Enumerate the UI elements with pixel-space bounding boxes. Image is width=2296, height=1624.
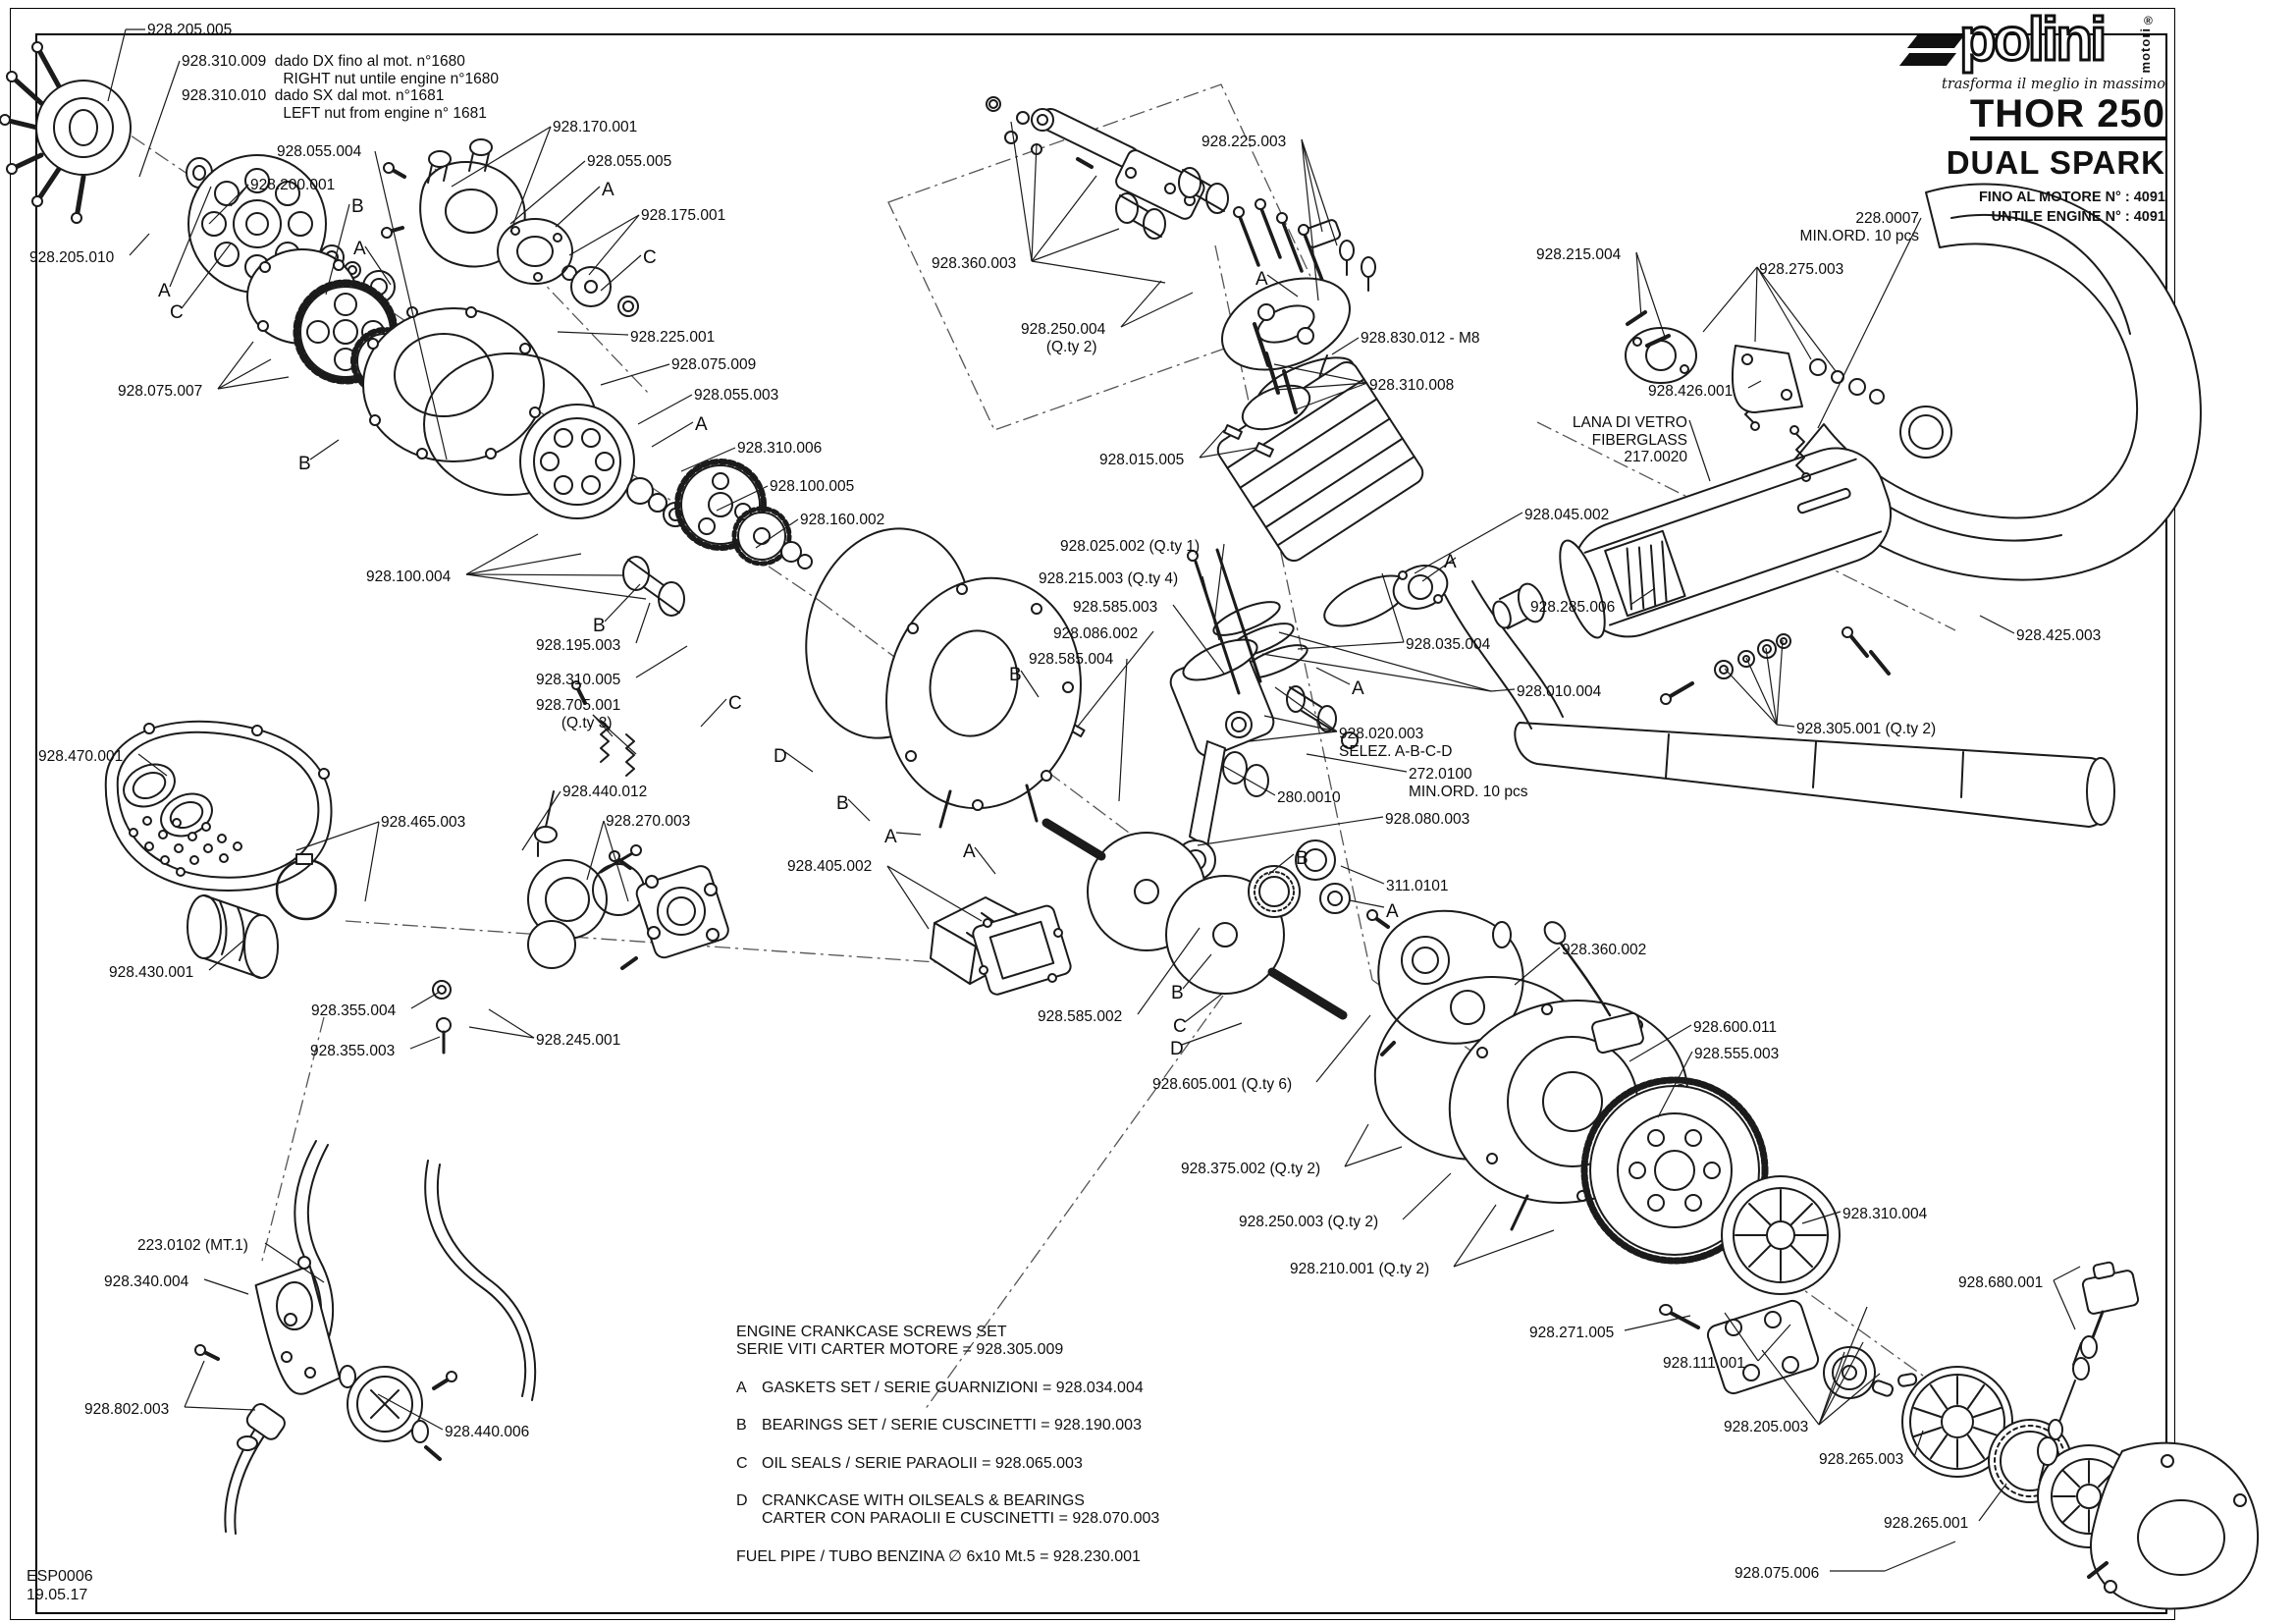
part-label: 928.802.003	[84, 1401, 169, 1419]
part-label: 928.225.003	[1201, 134, 1286, 151]
part-label: 928.025.002 (Q.ty 1)	[1060, 538, 1200, 556]
part-label: 928.340.004	[104, 1273, 188, 1291]
document-date: 19.05.17	[27, 1586, 93, 1604]
part-label: 928.100.004	[366, 568, 451, 586]
part-label: 928.585.003	[1073, 599, 1157, 617]
part-label: B	[1009, 665, 1022, 686]
part-label: 928.465.003	[381, 814, 465, 832]
part-label: 928.355.004	[311, 1002, 396, 1020]
model-variant: DUAL SPARK	[1865, 144, 2165, 182]
part-label: 223.0102 (MT.1)	[137, 1237, 248, 1255]
airbox-illustration	[106, 722, 332, 891]
part-label: A	[1352, 678, 1364, 700]
engine-note-line: UNTILE ENGINE N° : 4091	[1865, 208, 2165, 228]
part-label: 928.200.001	[250, 177, 335, 194]
brand-tagline: trasforma il meglio in massimo	[1924, 77, 2165, 92]
part-label: B	[351, 196, 364, 218]
part-label: 280.0010	[1277, 789, 1341, 807]
part-label: A	[1255, 269, 1268, 291]
part-label: 928.305.001 (Q.ty 2)	[1796, 721, 1936, 738]
part-label: 928.075.007	[118, 383, 202, 401]
brand-logo: polini ® motori	[1902, 16, 2165, 84]
center-crankcase-illustration	[784, 511, 1101, 827]
part-label: 928.055.004	[277, 143, 361, 161]
part-label: 928.210.001 (Q.ty 2)	[1290, 1261, 1429, 1278]
part-label: 928.440.006	[445, 1424, 529, 1441]
part-label: 928.605.001 (Q.ty 6)	[1152, 1076, 1292, 1094]
brand-subname: motori	[2138, 27, 2153, 73]
part-label: 928.426.001	[1648, 383, 1733, 401]
reed-valve-illustration	[931, 897, 1073, 997]
part-label: 928.265.003	[1819, 1451, 1903, 1469]
part-label: A	[1386, 901, 1399, 923]
legend-fuel-pipe: FUEL PIPE / TUBO BENZINA ∅ 6x10 Mt.5 = 9…	[736, 1548, 1345, 1566]
part-label: 928.160.002	[800, 512, 884, 529]
part-label: 272.0100MIN.ORD. 10 pcs	[1409, 766, 1527, 800]
part-label: 928.375.002 (Q.ty 2)	[1181, 1161, 1320, 1178]
legend-key: D	[736, 1492, 762, 1529]
part-label: 928.015.005	[1099, 452, 1184, 469]
drawing-footer: ESP0006 19.05.17	[27, 1567, 93, 1604]
part-label: 928.055.005	[587, 153, 671, 171]
legend-key: B	[736, 1417, 762, 1435]
part-label: A	[884, 827, 897, 848]
registered-mark: ®	[2144, 14, 2153, 27]
engine-note-line: FINO AL MOTORE N° : 4091	[1865, 189, 2165, 208]
part-label: D	[1170, 1039, 1184, 1060]
legend-title-line: SERIE VITI CARTER MOTORE = 928.305.009	[736, 1341, 1345, 1359]
brand-name: polini	[1959, 8, 2104, 72]
part-label: 928.310.006	[737, 440, 822, 458]
legend-item: AGASKETS SET / SERIE GUARNIZIONI = 928.0…	[736, 1380, 1345, 1397]
engine-number-note: FINO AL MOTORE N° : 4091 UNTILE ENGINE N…	[1865, 189, 2165, 227]
part-label: A	[963, 841, 976, 863]
model-title: THOR 250 DUAL SPARK	[1865, 94, 2165, 182]
part-label: 928.270.003	[606, 813, 690, 831]
starter-clutch-illustration	[1660, 1298, 2258, 1608]
primary-gears-cover-illustration	[247, 249, 812, 776]
part-label: 928.310.009 dado DX fino al mot. n°1680 …	[182, 53, 499, 123]
document-code: ESP0006	[27, 1567, 93, 1586]
part-label: 928.195.003	[536, 637, 620, 655]
part-label: 928.680.001	[1958, 1274, 2043, 1292]
legend-item: COIL SEALS / SERIE PARAOLII = 928.065.00…	[736, 1455, 1345, 1473]
part-label: 928.555.003	[1694, 1046, 1779, 1063]
part-label: A	[695, 414, 708, 436]
part-label: C	[1173, 1016, 1187, 1038]
part-label: 928.215.003 (Q.ty 4)	[1039, 570, 1178, 588]
part-label: 928.355.003	[310, 1043, 395, 1060]
part-label: 928.225.001	[630, 329, 715, 347]
legend-item: BBEARINGS SET / SERIE CUSCINETTI = 928.1…	[736, 1417, 1345, 1435]
part-label: 928.310.005	[536, 672, 620, 689]
part-label: 928.310.008	[1369, 377, 1454, 395]
legend-key: A	[736, 1380, 762, 1397]
part-label: A	[353, 239, 366, 260]
fuel-system-illustration	[195, 981, 535, 1534]
part-label: C	[170, 302, 184, 324]
part-label: 928.170.001	[553, 119, 637, 136]
part-label: 928.111.001	[1663, 1355, 1745, 1373]
part-label: B	[593, 616, 606, 637]
part-label: 928.271.005	[1529, 1325, 1614, 1342]
part-label: 928.405.002	[787, 858, 872, 876]
part-label: 311.0101	[1386, 878, 1449, 895]
part-label: B	[1171, 983, 1184, 1004]
right-crankcase-illustration	[1358, 910, 1840, 1294]
logo-stripe-icon	[1899, 53, 1956, 66]
part-label: A	[602, 180, 614, 201]
legend-text: OIL SEALS / SERIE PARAOLII = 928.065.003	[762, 1455, 1083, 1473]
legend-text: GASKETS SET / SERIE GUARNIZIONI = 928.03…	[762, 1380, 1144, 1397]
part-label: 928.010.004	[1517, 683, 1601, 701]
part-label: 928.086.002	[1053, 625, 1138, 643]
part-label: D	[774, 746, 787, 768]
part-label: C	[728, 693, 742, 715]
brand-side: ® motori	[2130, 14, 2163, 86]
part-label: 928.075.009	[671, 356, 756, 374]
part-label: 928.045.002	[1524, 507, 1609, 524]
part-label: 928.020.003SELEZ. A-B-C-D	[1339, 726, 1452, 760]
part-label: 928.265.001	[1884, 1515, 1968, 1533]
legend-title-line: ENGINE CRANKCASE SCREWS SET	[736, 1324, 1345, 1341]
part-label: 928.205.010	[29, 249, 114, 267]
part-label: 928.055.003	[694, 387, 778, 405]
part-label: 928.275.003	[1759, 261, 1843, 279]
part-label: 928.175.001	[641, 207, 725, 225]
part-label: 928.585.002	[1038, 1008, 1122, 1026]
part-label: C	[643, 247, 657, 269]
part-label: 928.100.005	[770, 478, 854, 496]
part-label: 928.215.004	[1536, 246, 1621, 264]
legend: ENGINE CRANKCASE SCREWS SET SERIE VITI C…	[736, 1324, 1345, 1566]
part-label: 928.585.004	[1029, 651, 1113, 669]
part-label: B	[836, 793, 849, 815]
part-label: 928.470.001	[38, 748, 123, 766]
part-label: 928.360.002	[1562, 942, 1646, 959]
part-label: 928.245.001	[536, 1032, 620, 1050]
part-label: A	[1444, 552, 1457, 573]
legend-key: C	[736, 1455, 762, 1473]
part-label: 928.205.003	[1724, 1419, 1808, 1436]
part-label: 928.250.004 (Q.ty 2)	[1021, 321, 1105, 355]
part-label: A	[158, 281, 171, 302]
part-label: 928.310.004	[1842, 1206, 1927, 1223]
part-label: 928.080.003	[1385, 811, 1469, 829]
legend-items: AGASKETS SET / SERIE GUARNIZIONI = 928.0…	[736, 1380, 1345, 1529]
part-label: LANA DI VETROFIBERGLASS217.0020	[1573, 414, 1687, 466]
part-label: 928.205.005	[147, 22, 232, 39]
part-label: 928.600.011	[1693, 1019, 1777, 1037]
part-label: 928.360.003	[932, 255, 1016, 273]
legend-text: CRANKCASE WITH OILSEALS & BEARINGSCARTER…	[762, 1492, 1159, 1529]
part-label: 928.830.012 - M8	[1361, 330, 1480, 348]
logo-stripe-icon	[1907, 35, 1964, 48]
engine-mount-rod-illustration	[987, 97, 1228, 239]
part-label: B	[1296, 848, 1308, 870]
model-name: THOR 250	[1970, 94, 2165, 140]
part-label: 928.440.012	[562, 784, 647, 801]
part-label: 928.430.001	[109, 964, 193, 982]
part-label: 928.425.003	[2016, 627, 2101, 645]
part-label: 928.075.006	[1735, 1565, 1819, 1583]
legend-text: BEARINGS SET / SERIE CUSCINETTI = 928.19…	[762, 1417, 1142, 1435]
part-label: 928.285.006	[1530, 599, 1615, 617]
part-label: 928.035.004	[1406, 636, 1490, 654]
part-label: B	[298, 454, 311, 475]
part-label: 928.705.001 (Q.ty 3)	[536, 697, 620, 731]
legend-item: DCRANKCASE WITH OILSEALS & BEARINGSCARTE…	[736, 1492, 1345, 1529]
parts-catalog-page: 928.205.005928.310.009 dado DX fino al m…	[0, 0, 2296, 1624]
part-label: 928.250.003 (Q.ty 2)	[1239, 1214, 1378, 1231]
